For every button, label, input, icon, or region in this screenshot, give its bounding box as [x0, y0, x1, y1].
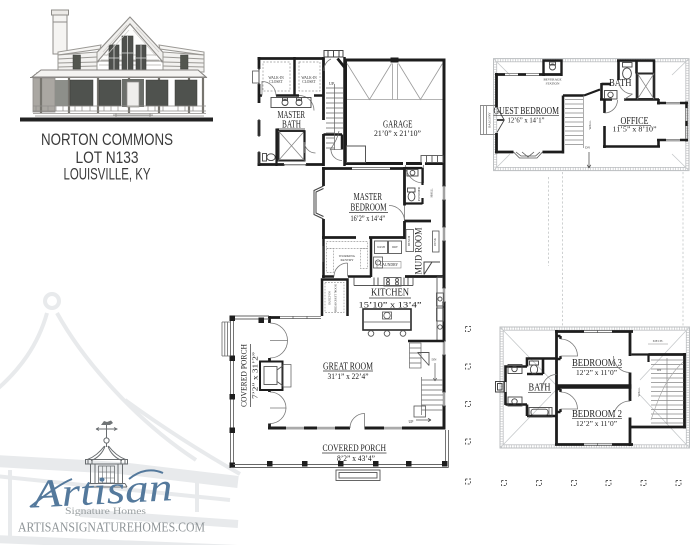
svg-text:DN: DN: [432, 358, 437, 362]
svg-text:12’6” x 14’1”: 12’6” x 14’1”: [508, 116, 545, 125]
svg-text:DN: DN: [657, 368, 662, 372]
svg-text:Signature Homes: Signature Homes: [65, 507, 146, 517]
svg-text:UP: UP: [409, 420, 414, 424]
svg-text:COVERED PORCH: COVERED PORCH: [323, 444, 387, 454]
svg-text:COVERED PORCH: COVERED PORCH: [239, 344, 249, 407]
svg-text:DESK: DESK: [433, 237, 437, 246]
svg-text:CLOSET: CLOSET: [302, 80, 316, 84]
svg-text:DRY: DRY: [392, 246, 398, 249]
svg-text:21’0” x 21’10”: 21’0” x 21’10”: [374, 128, 421, 138]
svg-text:15’10” x 13’4”: 15’10” x 13’4”: [359, 300, 422, 310]
svg-text:BUILT-IN: BUILT-IN: [328, 291, 332, 305]
svg-text:STATION: STATION: [546, 82, 560, 86]
svg-text:BATH: BATH: [529, 383, 551, 394]
svg-text:MUD ROOM: MUD ROOM: [414, 228, 424, 275]
svg-text:LOT N133: LOT N133: [76, 149, 139, 167]
svg-text:BEDROOM: BEDROOM: [351, 203, 387, 214]
svg-text:7’2” x 31’2”: 7’2” x 31’2”: [252, 352, 260, 399]
svg-text:CLOSET: CLOSET: [269, 80, 283, 84]
svg-text:ARTISANSIGNATUREHOMES.COM: ARTISANSIGNATUREHOMES.COM: [18, 520, 205, 535]
svg-text:WALL: WALL: [637, 388, 641, 397]
svg-text:8’2” x 43’4”: 8’2” x 43’4”: [337, 454, 375, 463]
svg-text:WALL: WALL: [588, 121, 592, 130]
svg-text:BREAKFAST NOOK: BREAKFAST NOOK: [334, 283, 338, 312]
svg-text:NORTON COMMONS: NORTON COMMONS: [41, 131, 173, 149]
svg-text:12’2” x 11’0”: 12’2” x 11’0”: [576, 368, 617, 377]
svg-text:BALCONY: BALCONY: [488, 112, 492, 128]
svg-text:DN: DN: [585, 146, 590, 150]
svg-text:16’2” x 14’4”: 16’2” x 14’4”: [351, 213, 386, 223]
svg-text:BENCH: BENCH: [407, 235, 411, 246]
svg-text:WASH: WASH: [377, 246, 385, 249]
svg-text:31’1” x 22’4”: 31’1” x 22’4”: [328, 371, 369, 381]
svg-text:MECH.: MECH.: [653, 339, 664, 343]
svg-text:POWDER: POWDER: [417, 186, 421, 201]
svg-text:MASTER: MASTER: [354, 192, 383, 203]
svg-text:LOUISVILLE, KY: LOUISVILLE, KY: [64, 166, 151, 184]
svg-text:HALL: HALL: [430, 188, 434, 197]
svg-text:KITCHEN: KITCHEN: [371, 288, 409, 299]
svg-text:UP: UP: [329, 81, 335, 86]
svg-text:PANTRY: PANTRY: [340, 258, 354, 262]
svg-text:12’2” x 11’0”: 12’2” x 11’0”: [576, 419, 617, 428]
